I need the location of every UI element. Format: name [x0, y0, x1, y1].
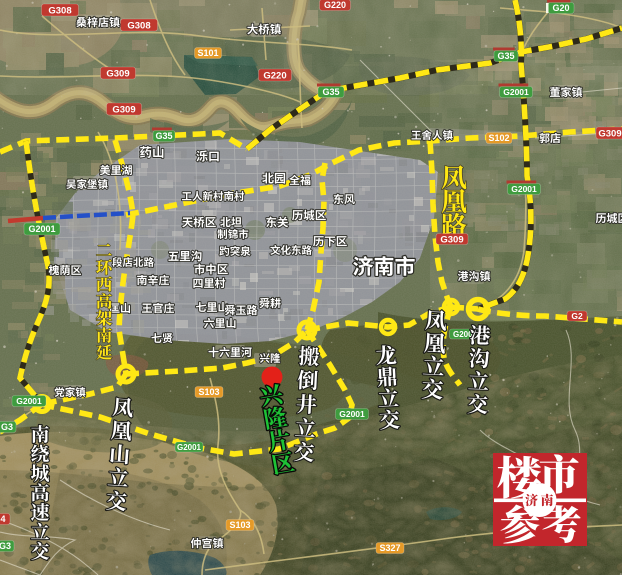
svg-text:G2001: G2001	[339, 409, 365, 419]
svg-text:G3: G3	[0, 541, 11, 551]
svg-text:G308: G308	[48, 5, 71, 16]
svg-text:G2: G2	[571, 311, 583, 321]
svg-text:G309: G309	[106, 68, 129, 79]
svg-text:S327: S327	[379, 543, 400, 553]
svg-text:S102: S102	[488, 133, 509, 143]
svg-text:G309: G309	[598, 128, 621, 139]
svg-text:G220: G220	[324, 0, 346, 10]
svg-text:G309: G309	[112, 104, 135, 115]
svg-text:G3: G3	[1, 422, 13, 432]
svg-text:G35: G35	[497, 51, 514, 61]
svg-text:G2001: G2001	[16, 396, 42, 406]
svg-text:S101: S101	[197, 48, 218, 58]
svg-text:G2001: G2001	[28, 224, 55, 234]
svg-text:S103: S103	[229, 520, 250, 530]
svg-text:G309: G309	[440, 234, 463, 245]
svg-text:G35: G35	[155, 131, 172, 141]
svg-text:G2001: G2001	[177, 443, 202, 452]
svg-text:G20: G20	[552, 3, 569, 13]
svg-text:4: 4	[0, 514, 5, 524]
svg-text:S103: S103	[198, 387, 219, 397]
svg-text:G220: G220	[263, 70, 286, 81]
svg-text:G308: G308	[127, 20, 150, 31]
svg-text:G35: G35	[322, 87, 339, 97]
svg-text:G2001: G2001	[503, 87, 529, 97]
svg-text:G2001: G2001	[511, 184, 537, 194]
